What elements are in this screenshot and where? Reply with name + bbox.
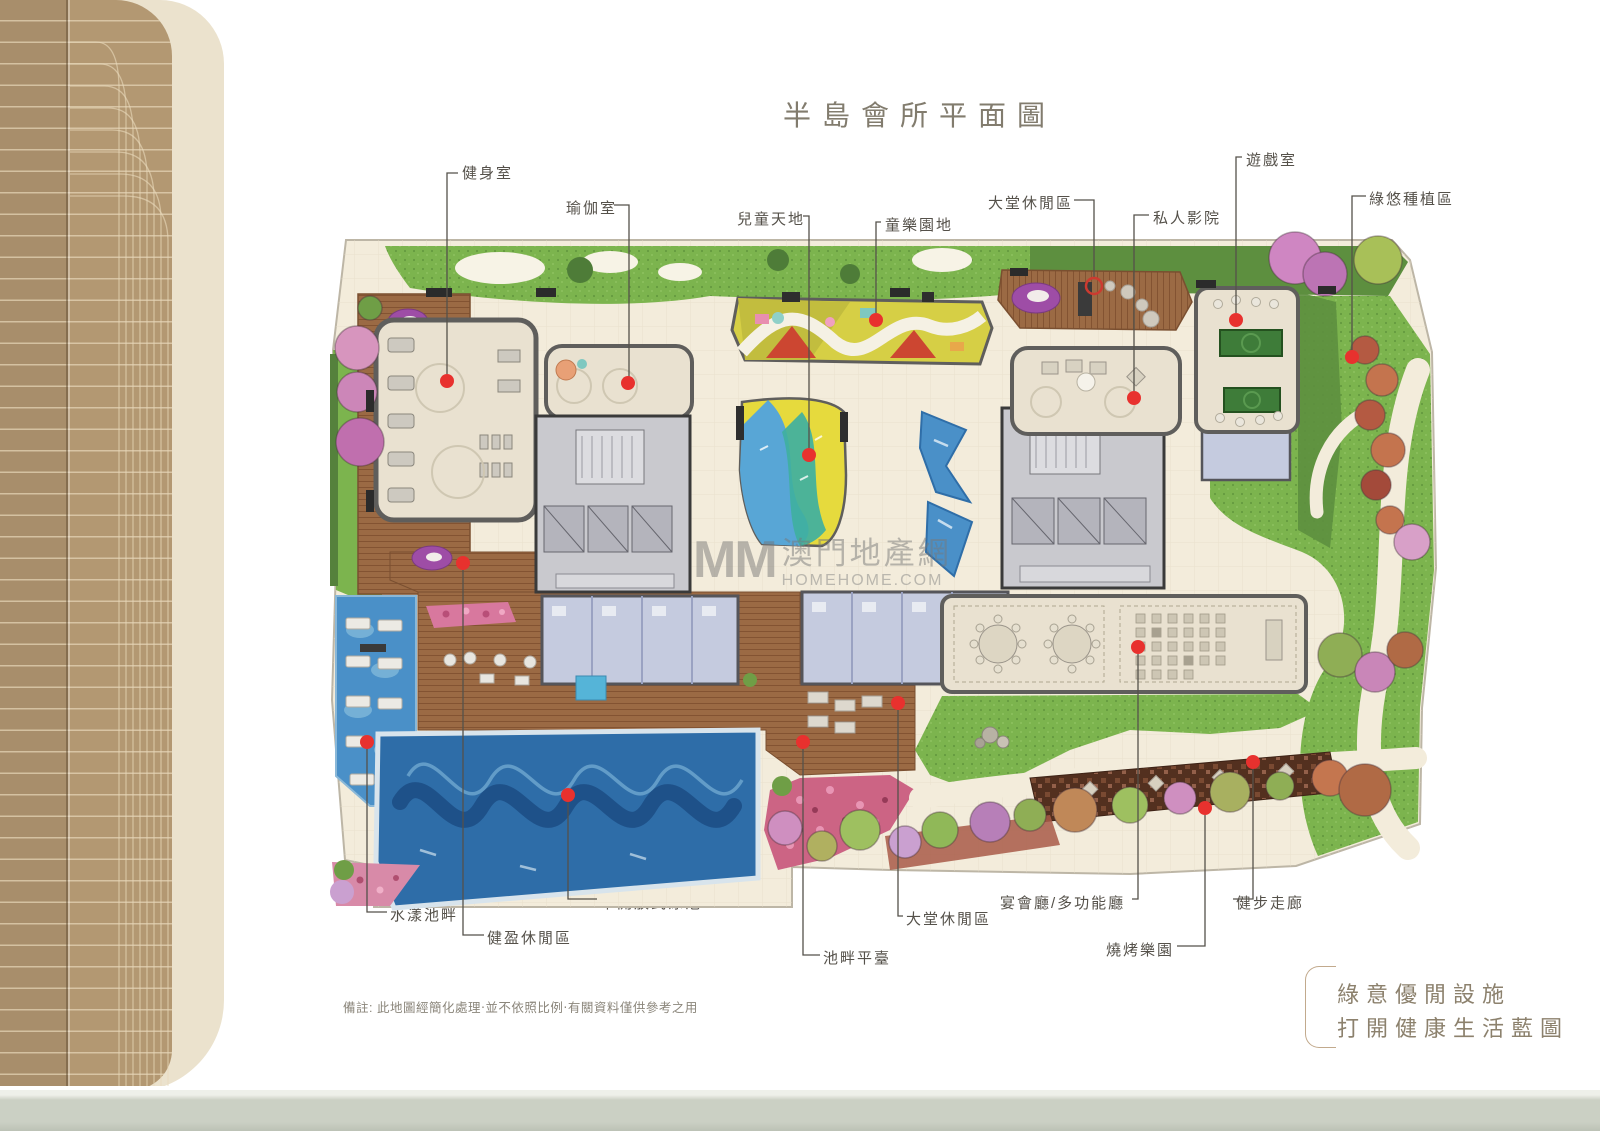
marker-lobby-bottom xyxy=(891,696,905,710)
marker-banquet xyxy=(1131,640,1145,654)
marker-corridor xyxy=(1246,755,1260,769)
marker-playground xyxy=(869,313,883,327)
marker-green-planting xyxy=(1345,350,1359,364)
marker-fit-leisure xyxy=(456,556,470,570)
marker-gym xyxy=(440,374,454,388)
marker-kids-world xyxy=(802,448,816,462)
marker-private-cinema xyxy=(1127,391,1141,405)
marker-game-room xyxy=(1229,313,1243,327)
marker-poolside-deck xyxy=(796,735,810,749)
marker-yoga xyxy=(621,376,635,390)
scanned-brochure-page: { "page": { "title": "半島會所平面圖", "note": … xyxy=(0,0,1600,1131)
leader-lines xyxy=(0,0,1600,1131)
marker-bbq xyxy=(1198,801,1212,815)
marker-water-poolside xyxy=(360,735,374,749)
marker-lobby-top-ring xyxy=(1086,278,1102,294)
facility-markers xyxy=(360,278,1359,815)
marker-semi-open-pool xyxy=(561,788,575,802)
